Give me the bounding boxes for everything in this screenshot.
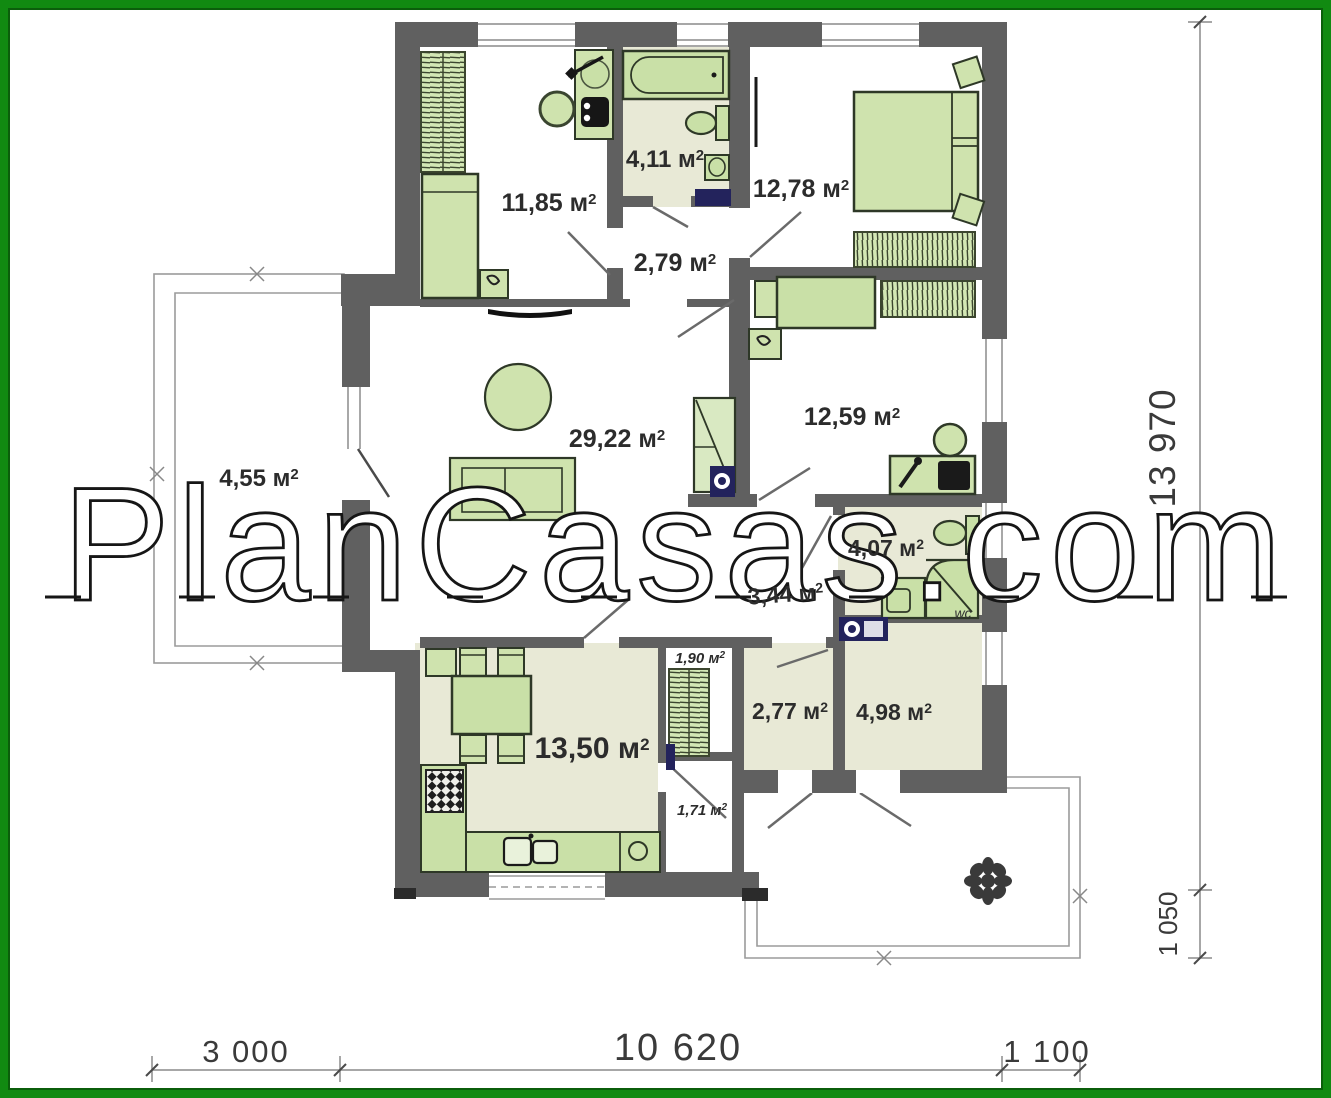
svg-text:11,85 м2: 11,85 м2 xyxy=(502,189,597,217)
svg-text:12,78 м2: 12,78 м2 xyxy=(753,175,849,203)
svg-text:1 050: 1 050 xyxy=(1153,891,1183,956)
svg-text:4,07 м2: 4,07 м2 xyxy=(848,535,924,561)
svg-text:29,22 м2: 29,22 м2 xyxy=(569,425,665,453)
svg-text:1 100: 1 100 xyxy=(1003,1034,1091,1069)
svg-text:12,59 м2: 12,59 м2 xyxy=(804,403,900,431)
svg-text:1,90 м2: 1,90 м2 xyxy=(675,650,725,667)
svg-text:13,50 м2: 13,50 м2 xyxy=(534,732,649,765)
svg-text:10 620: 10 620 xyxy=(614,1027,742,1069)
svg-text:3 000: 3 000 xyxy=(202,1034,290,1069)
svg-text:4,11 м2: 4,11 м2 xyxy=(626,146,704,173)
svg-text:PlanCasas.com: PlanCasas.com xyxy=(62,454,1282,635)
svg-text:1,71 м2: 1,71 м2 xyxy=(677,802,727,819)
svg-text:2,79 м2: 2,79 м2 xyxy=(634,249,716,277)
svg-text:2,77 м2: 2,77 м2 xyxy=(752,698,828,724)
svg-text:4,98 м2: 4,98 м2 xyxy=(856,699,932,725)
svg-text:3,44 м2: 3,44 м2 xyxy=(747,578,825,609)
